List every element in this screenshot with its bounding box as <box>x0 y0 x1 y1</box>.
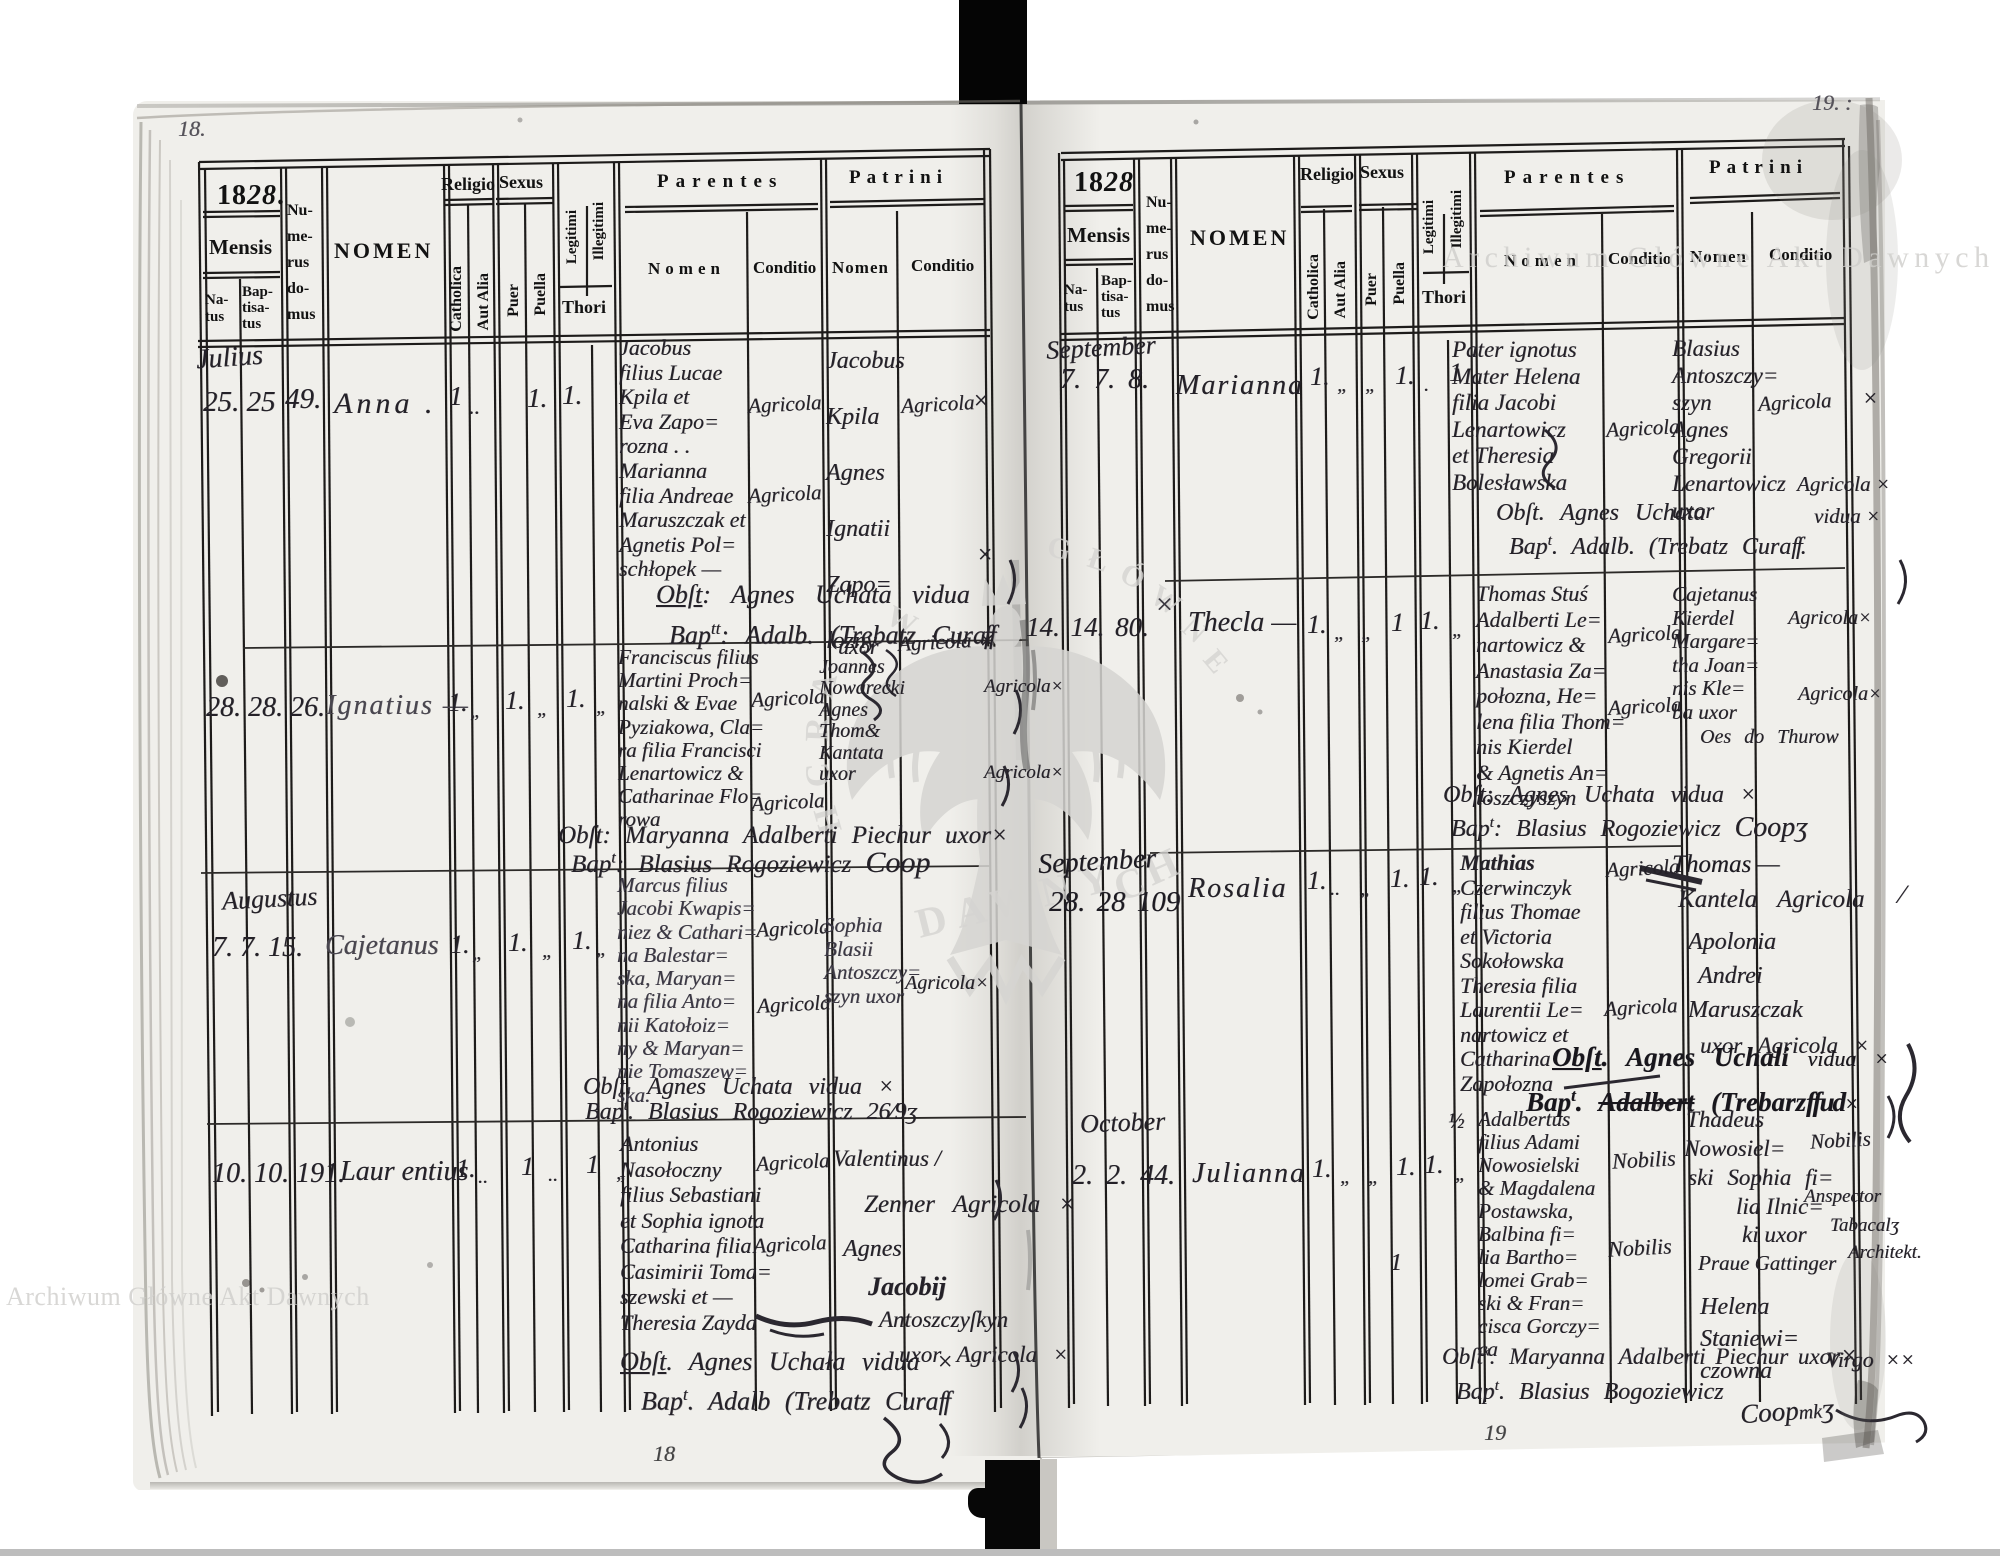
svg-text:G: G <box>1045 530 1074 567</box>
svg-text:Ł: Ł <box>1084 541 1113 579</box>
svg-text:Ó: Ó <box>1115 557 1150 597</box>
svg-text:E: E <box>1197 643 1235 680</box>
